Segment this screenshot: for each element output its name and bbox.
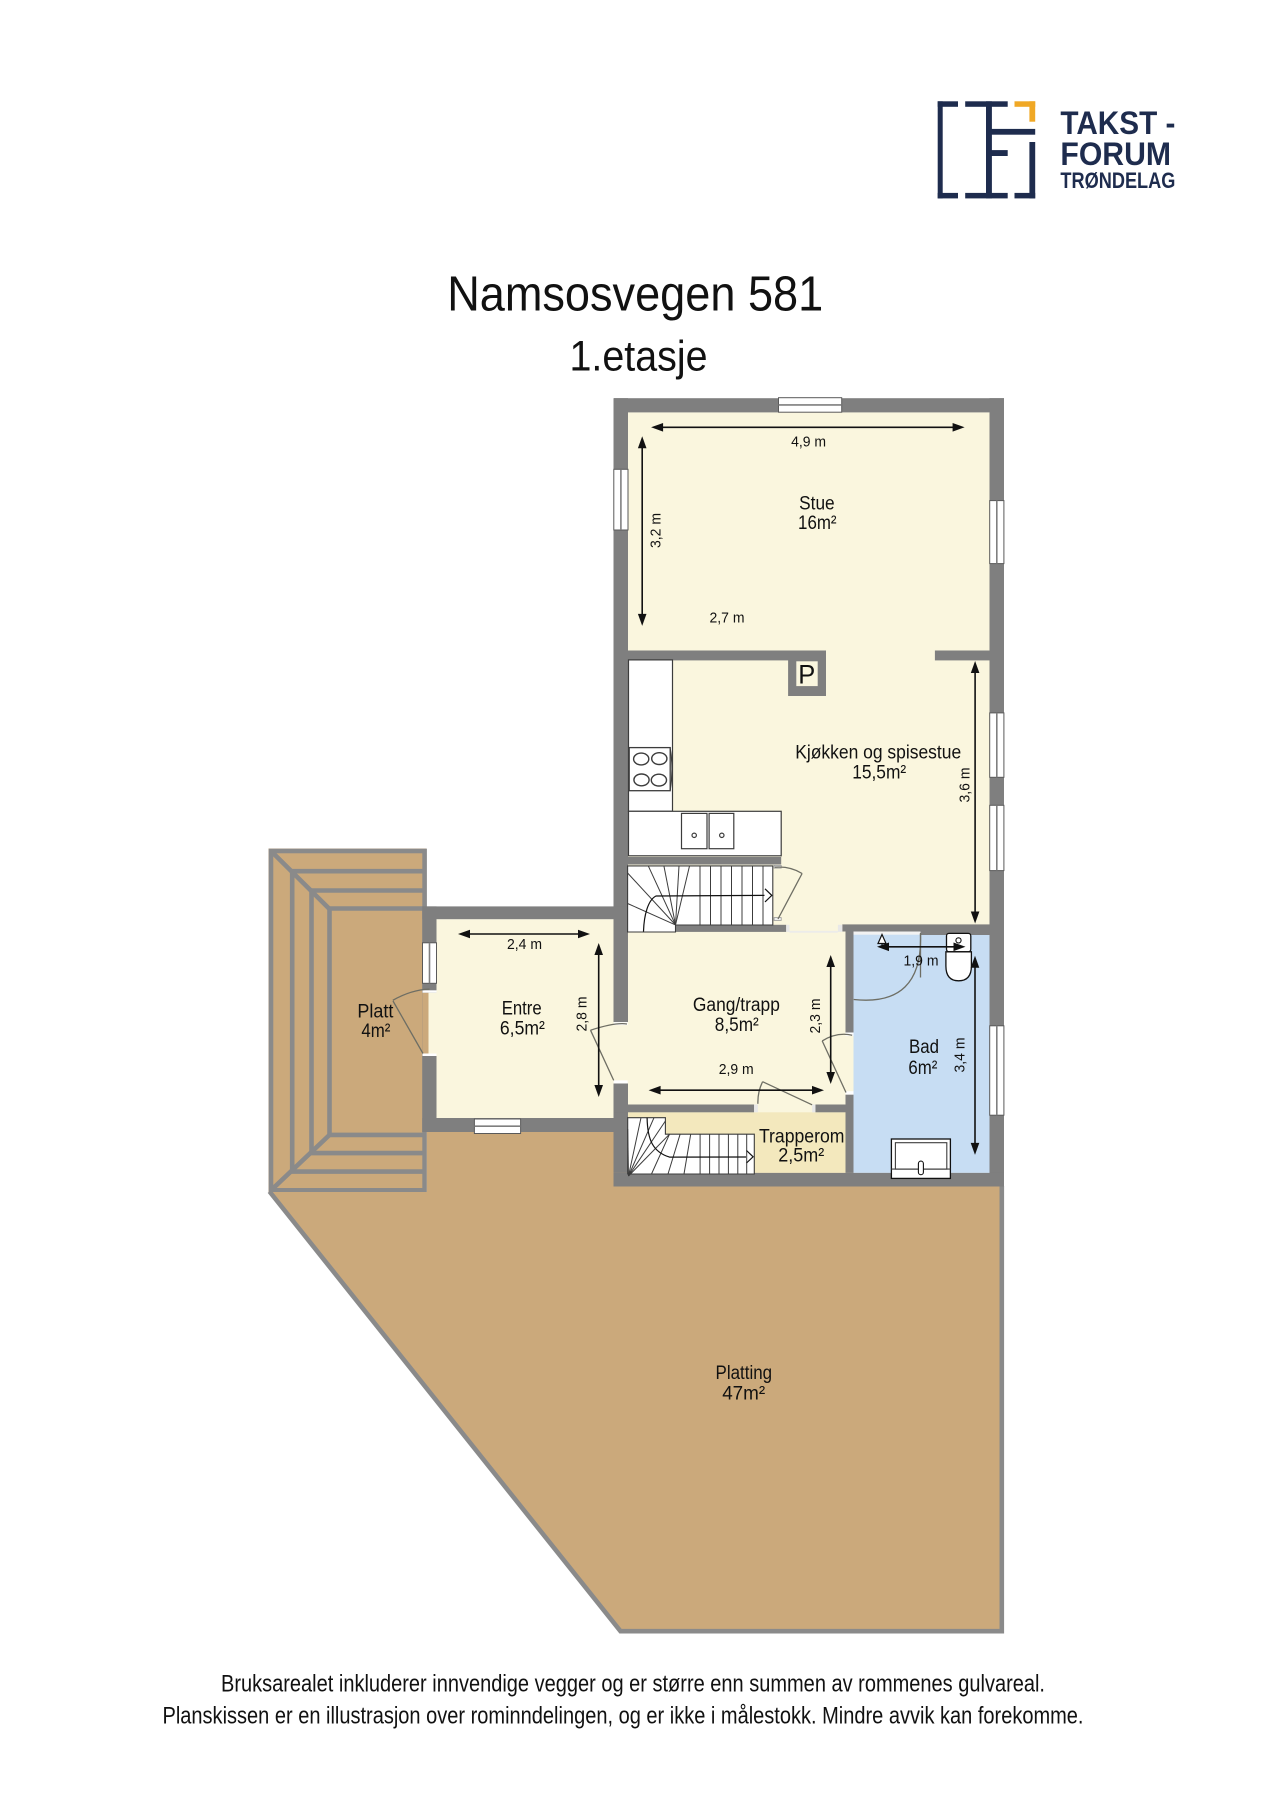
svg-text:Bruksarealet inkluderer innven: Bruksarealet inkluderer innvendige vegge…: [221, 1670, 1045, 1697]
svg-text:6m²: 6m²: [908, 1058, 937, 1079]
svg-text:FORUM: FORUM: [1060, 136, 1171, 172]
svg-text:3,4 m: 3,4 m: [951, 1038, 968, 1073]
svg-text:TRØNDELAG: TRØNDELAG: [1060, 168, 1175, 193]
svg-text:Kjøkken og spisestue: Kjøkken og spisestue: [795, 743, 961, 764]
svg-text:15,5m²: 15,5m²: [852, 763, 906, 784]
svg-text:3,2 m: 3,2 m: [648, 513, 665, 548]
svg-text:Platt: Platt: [357, 1002, 394, 1023]
svg-text:3,6 m: 3,6 m: [956, 768, 973, 803]
svg-text:Planskissen er en illustrasjon: Planskissen er en illustrasjon over romi…: [163, 1703, 1084, 1730]
svg-text:Gang/trapp: Gang/trapp: [693, 995, 780, 1016]
svg-text:2,5m²: 2,5m²: [778, 1146, 824, 1167]
svg-text:4m²: 4m²: [361, 1021, 390, 1042]
svg-text:2,9 m: 2,9 m: [719, 1061, 754, 1078]
svg-text:2,8 m: 2,8 m: [573, 997, 590, 1032]
svg-text:2,7 m: 2,7 m: [710, 610, 745, 627]
svg-text:1,9 m: 1,9 m: [904, 952, 939, 969]
svg-text:Namsosvegen 581: Namsosvegen 581: [447, 268, 823, 322]
svg-text:47m²: 47m²: [722, 1384, 765, 1405]
svg-text:Stue: Stue: [799, 494, 835, 515]
svg-text:Trapperom: Trapperom: [759, 1127, 845, 1148]
svg-text:P: P: [798, 660, 815, 690]
svg-text:Bad: Bad: [909, 1037, 939, 1058]
svg-text:Entre: Entre: [502, 999, 542, 1020]
svg-text:1.etasje: 1.etasje: [570, 333, 708, 381]
svg-text:2,4 m: 2,4 m: [507, 936, 542, 953]
svg-text:6,5m²: 6,5m²: [500, 1018, 545, 1039]
svg-text:4,9 m: 4,9 m: [791, 434, 826, 451]
svg-text:16m²: 16m²: [798, 513, 837, 534]
svg-text:8,5m²: 8,5m²: [715, 1015, 759, 1036]
svg-text:Platting: Platting: [716, 1363, 773, 1384]
svg-text:2,3 m: 2,3 m: [807, 999, 824, 1034]
